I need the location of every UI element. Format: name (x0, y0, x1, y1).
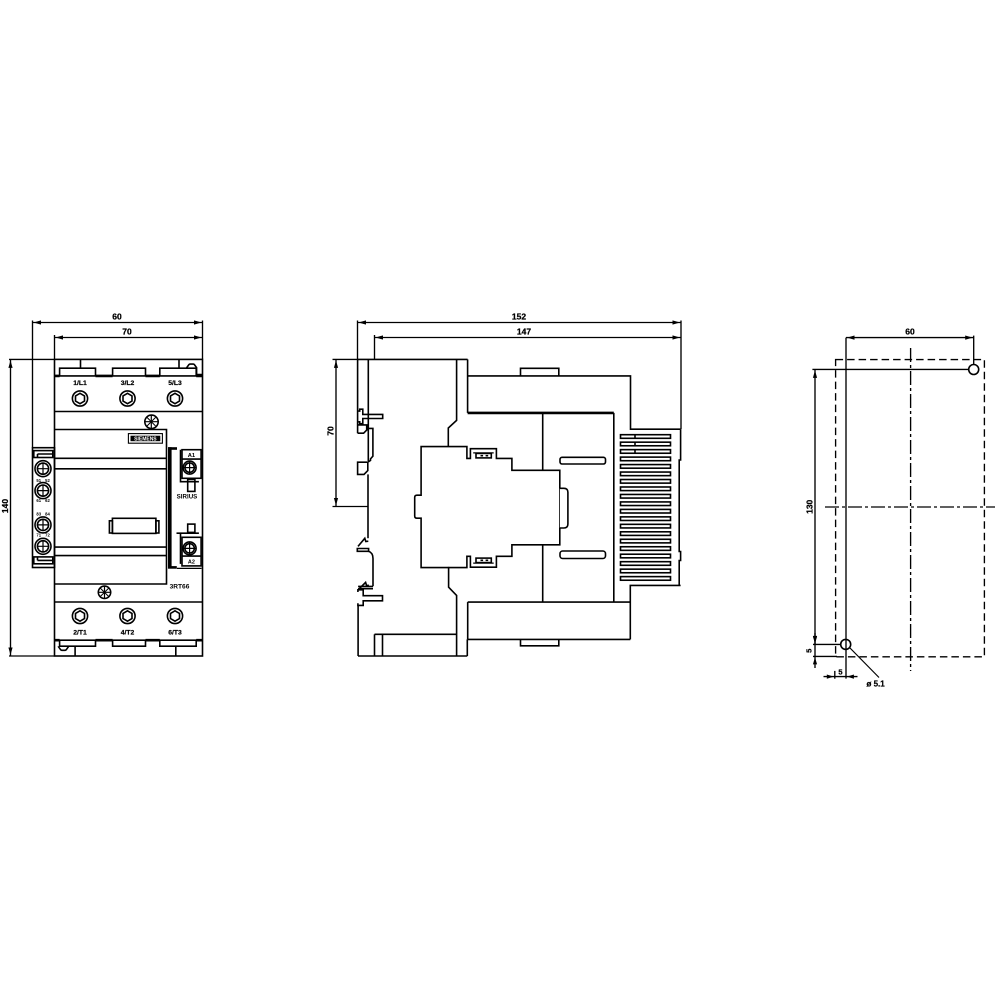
svg-text:84: 84 (45, 512, 50, 517)
svg-text:147: 147 (517, 327, 531, 337)
svg-text:61: 61 (36, 498, 41, 503)
svg-text:3/L2: 3/L2 (121, 380, 135, 387)
svg-text:51: 51 (36, 478, 41, 483)
svg-text:5: 5 (805, 649, 814, 653)
svg-text:A2: A2 (188, 560, 195, 566)
svg-text:4/T2: 4/T2 (121, 630, 135, 637)
svg-text:ø 5.1: ø 5.1 (867, 680, 886, 689)
svg-text:152: 152 (512, 312, 526, 322)
svg-text:72: 72 (45, 533, 50, 538)
svg-text:60: 60 (112, 312, 122, 322)
svg-text:130: 130 (805, 499, 815, 513)
svg-text:2/T1: 2/T1 (73, 630, 87, 637)
svg-text:SIRIUS: SIRIUS (177, 494, 198, 501)
svg-text:6/T3: 6/T3 (168, 630, 182, 637)
svg-text:140: 140 (0, 499, 10, 513)
svg-text:SIEMENS: SIEMENS (134, 436, 157, 442)
svg-text:70: 70 (326, 426, 336, 436)
svg-text:62: 62 (45, 498, 50, 503)
svg-text:83: 83 (36, 512, 41, 517)
svg-text:70: 70 (122, 327, 132, 337)
svg-text:1/L1: 1/L1 (73, 380, 87, 387)
svg-text:A1: A1 (188, 453, 196, 459)
svg-text:52: 52 (45, 478, 50, 483)
svg-text:3RT66: 3RT66 (170, 583, 190, 590)
svg-text:71: 71 (36, 533, 41, 538)
svg-text:5: 5 (838, 668, 842, 677)
svg-text:60: 60 (905, 327, 915, 337)
svg-text:5/L3: 5/L3 (168, 380, 182, 387)
